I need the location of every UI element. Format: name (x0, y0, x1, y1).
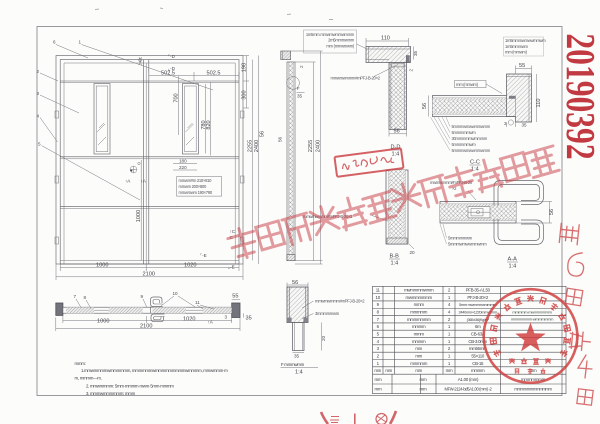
svg-text:5mmmmmwm: 5mmmmmwm (448, 236, 473, 241)
svg-text:9: 9 (141, 294, 144, 299)
svg-text:5mmmwmwwmmwmm: 5mmmwmwwmmwmm (452, 124, 491, 129)
svg-text:CB-15: CB-15 (472, 361, 484, 366)
svg-text:mm: mm (420, 387, 427, 392)
svg-text:3: 3 (37, 91, 40, 96)
svg-text:mmmm: mmmm (412, 324, 426, 329)
svg-text:mmwm 200×800: mmwm 200×800 (179, 184, 207, 189)
svg-text:502.5: 502.5 (161, 70, 175, 76)
svg-text:20190392: 20190392 (558, 33, 600, 159)
svg-text:1000: 1000 (96, 262, 108, 268)
svg-text:mm: mm (415, 353, 422, 358)
svg-text:mmmmm: mmmmm (410, 361, 427, 366)
svg-text:mmwm#m 210×810: mmwm#m 210×810 (179, 178, 213, 183)
svg-text:2m5mmmwmm: 2m5mmmwmm (328, 38, 355, 43)
svg-text:5mmmmmwm: 5mmmmmwm (452, 142, 477, 147)
svg-text:110: 110 (536, 99, 542, 108)
svg-text:mm: mm (415, 346, 422, 351)
svg-text:300: 300 (242, 90, 248, 99)
svg-text:6m: 6m (475, 324, 481, 329)
svg-text:B-B: B-B (390, 254, 400, 260)
svg-text:PFB-35-A1.50: PFB-35-A1.50 (466, 288, 491, 293)
svg-text:1000: 1000 (97, 319, 109, 325)
svg-text:↑C: ↑C (230, 229, 236, 234)
svg-text:MFW-2124-bd5A1.00 (mm) -2: MFW-2124-bd5A1.00 (mm) -2 (444, 387, 492, 392)
svg-text:m, mmmm—m.: m, mmmm—m. (75, 376, 102, 381)
svg-text:2. mmwmmmm: 5mm·mmmm·mwm·5mm·m: 2. mmwmmmm: 5mm·mmmm·mwm·5mm·mmmm (86, 383, 174, 388)
svg-text:2: 2 (299, 65, 304, 68)
svg-text:180: 180 (179, 158, 187, 163)
svg-text:3. mmmwmmmmmm: mmm: 3. mmmwmmmmmm: mmm (86, 391, 136, 396)
svg-text:mm: mm (385, 368, 392, 373)
svg-text:↑A: ↑A (208, 320, 214, 325)
svg-text:56: 56 (549, 209, 555, 215)
svg-text:1: 1 (79, 40, 82, 45)
svg-text:2100: 2100 (143, 271, 155, 277)
svg-text:F: F (297, 86, 300, 91)
svg-text:2100: 2100 (140, 323, 152, 329)
svg-text:mwmmmmwmm: mwmmmmwmm (404, 288, 434, 293)
svg-text:⌞-E: ⌞-E (228, 265, 235, 270)
svg-text:1020: 1020 (183, 317, 195, 323)
svg-text:mm: mm (530, 368, 537, 373)
svg-text:mmmm: mmmm (471, 368, 485, 373)
svg-text:↑A: ↑A (125, 179, 131, 184)
svg-text:mmm: mmm (414, 332, 425, 337)
svg-text:56: 56 (422, 103, 428, 109)
svg-text:mmmmmmm: mmmmmmm (407, 317, 431, 322)
svg-text:35: 35 (522, 123, 528, 128)
svg-text:1m5mm mmwmwmmwmmm: 1m5mm mmwmwmmwmmm (306, 32, 355, 37)
svg-text:2255: 2255 (248, 140, 254, 152)
svg-text:mmm:: mmm: (75, 361, 86, 366)
svg-text:35: 35 (413, 50, 418, 56)
svg-text:mm: mm (374, 368, 381, 373)
svg-text:A1.00 (mm): A1.00 (mm) (458, 377, 479, 382)
svg-text:2: 2 (409, 69, 414, 72)
svg-text:56: 56 (259, 131, 265, 137)
svg-text:mmwmwm 190×790: mmwmwm 190×790 (179, 190, 213, 195)
svg-text:mm: mm (375, 377, 382, 382)
svg-text:55×110: 55×110 (471, 353, 485, 358)
svg-text:1:4: 1:4 (509, 264, 517, 270)
svg-text:1:4: 1:4 (391, 261, 399, 267)
svg-text:2: 2 (37, 69, 40, 74)
svg-text:35: 35 (246, 315, 252, 321)
svg-text:5mmmwmwwmmwmm: 5mmmwmwwmmwmm (448, 242, 487, 247)
svg-text:5mmmwmwwmmwmm: 5mmmwmwwmmwmm (452, 148, 491, 153)
svg-text:8: 8 (84, 295, 87, 300)
svg-text:mm: mm (375, 387, 382, 392)
svg-text:1020: 1020 (184, 262, 196, 268)
svg-text:56: 56 (278, 136, 283, 142)
svg-text:mmwmwmmm#mPFJ-B-20×2: mmwmwmmm#mPFJ-B-20×2 (331, 76, 381, 81)
svg-text:mmmm: mmmm (412, 339, 426, 344)
svg-text:mmmmmmm·wmmmmmm: mmmmmmm·wmmmmmm (511, 317, 554, 322)
svg-text:mmwmwmmm#mPFJ-B-20×2: mmwmwmmm#mPFJ-B-20×2 (315, 299, 365, 304)
svg-text:10: 10 (173, 291, 179, 296)
svg-text:PFJ-B-20×2: PFJ-B-20×2 (467, 295, 488, 300)
svg-text:2400: 2400 (254, 140, 260, 152)
svg-text:mwmmmmmm: mwmmmmmm (406, 295, 433, 300)
svg-text:30mmmmmwmmmm: 30mmmmmwmmmm (452, 136, 488, 141)
svg-text:20: 20 (410, 250, 416, 255)
svg-text:220: 220 (179, 165, 187, 170)
svg-text:700: 700 (174, 93, 180, 102)
svg-text:F mmmwmm: F mmmwmm (281, 362, 305, 367)
svg-text:3: 3 (225, 314, 228, 319)
svg-text:35: 35 (297, 94, 303, 99)
svg-text:2400: 2400 (315, 140, 321, 152)
svg-text:1:4: 1:4 (295, 370, 303, 376)
svg-text:●: ● (130, 168, 133, 173)
svg-text:mmmmm·mwmmmmmm: mmmmm·mwmmmmmm (512, 309, 552, 314)
svg-text:mmmmm: mmmmm (410, 310, 427, 315)
svg-text:mm (mmwm): mm (mmwm) (505, 50, 528, 55)
svg-text:56: 56 (292, 280, 298, 286)
svg-text:C-C: C-C (470, 160, 480, 166)
svg-text:35: 35 (294, 353, 300, 358)
svg-text:7: 7 (74, 294, 77, 299)
svg-text:⌜-E: ⌜-E (200, 253, 207, 258)
svg-text:502.5: 502.5 (207, 70, 221, 76)
svg-text:55: 55 (519, 63, 525, 69)
svg-text:1m5mmmwm: 1m5mmmwm (505, 44, 529, 49)
svg-text:11: 11 (195, 300, 200, 305)
svg-text:55: 55 (232, 294, 238, 300)
svg-text:5: 5 (38, 142, 41, 147)
svg-text:A-A: A-A (508, 257, 518, 263)
svg-text:1.mmwmmmmwmmmmmm, mmmmmmwmmmmm: 1.mmwmmmmwmmmmmm, mmmmmmwmmmmmmmmmwmmmm,… (81, 368, 228, 373)
svg-text:mm: mm (446, 368, 453, 373)
svg-text:⌜-D: ⌜-D (168, 54, 176, 59)
svg-text:1000: 1000 (136, 210, 142, 222)
svg-text:820: 820 (206, 120, 212, 129)
svg-text:3mmmmmwm: 3mmmmmwm (315, 311, 340, 316)
svg-text:198: 198 (242, 63, 248, 72)
svg-text:mm: mm (420, 377, 427, 382)
svg-text:mm (mmwmwm): mm (mmwmwm) (326, 43, 355, 48)
svg-text:mm (mmwm): mm (mmwm) (456, 82, 479, 87)
svg-text:6: 6 (53, 40, 56, 45)
svg-text:20: 20 (321, 335, 326, 341)
svg-text:1m5mmmwmwwmmwm: 1m5mmmwmwwmmwm (505, 38, 546, 43)
svg-text:mm: mm (415, 368, 422, 373)
svg-text:4: 4 (37, 114, 40, 119)
svg-text:mmm: mmm (414, 302, 425, 307)
svg-text:2255: 2255 (308, 140, 314, 152)
svg-text:mmmmmmmmmmmm: mmmmmmmmmmmm (514, 387, 552, 392)
svg-text:5mm mwmmmwmmmm: 5mm mwmmmwmmmm (459, 302, 496, 307)
svg-text:56: 56 (394, 129, 400, 135)
svg-text:1:4: 1:4 (392, 152, 400, 158)
svg-text:110: 110 (381, 36, 390, 42)
svg-text:5mmmmmwm: 5mmmmmwm (452, 130, 477, 135)
